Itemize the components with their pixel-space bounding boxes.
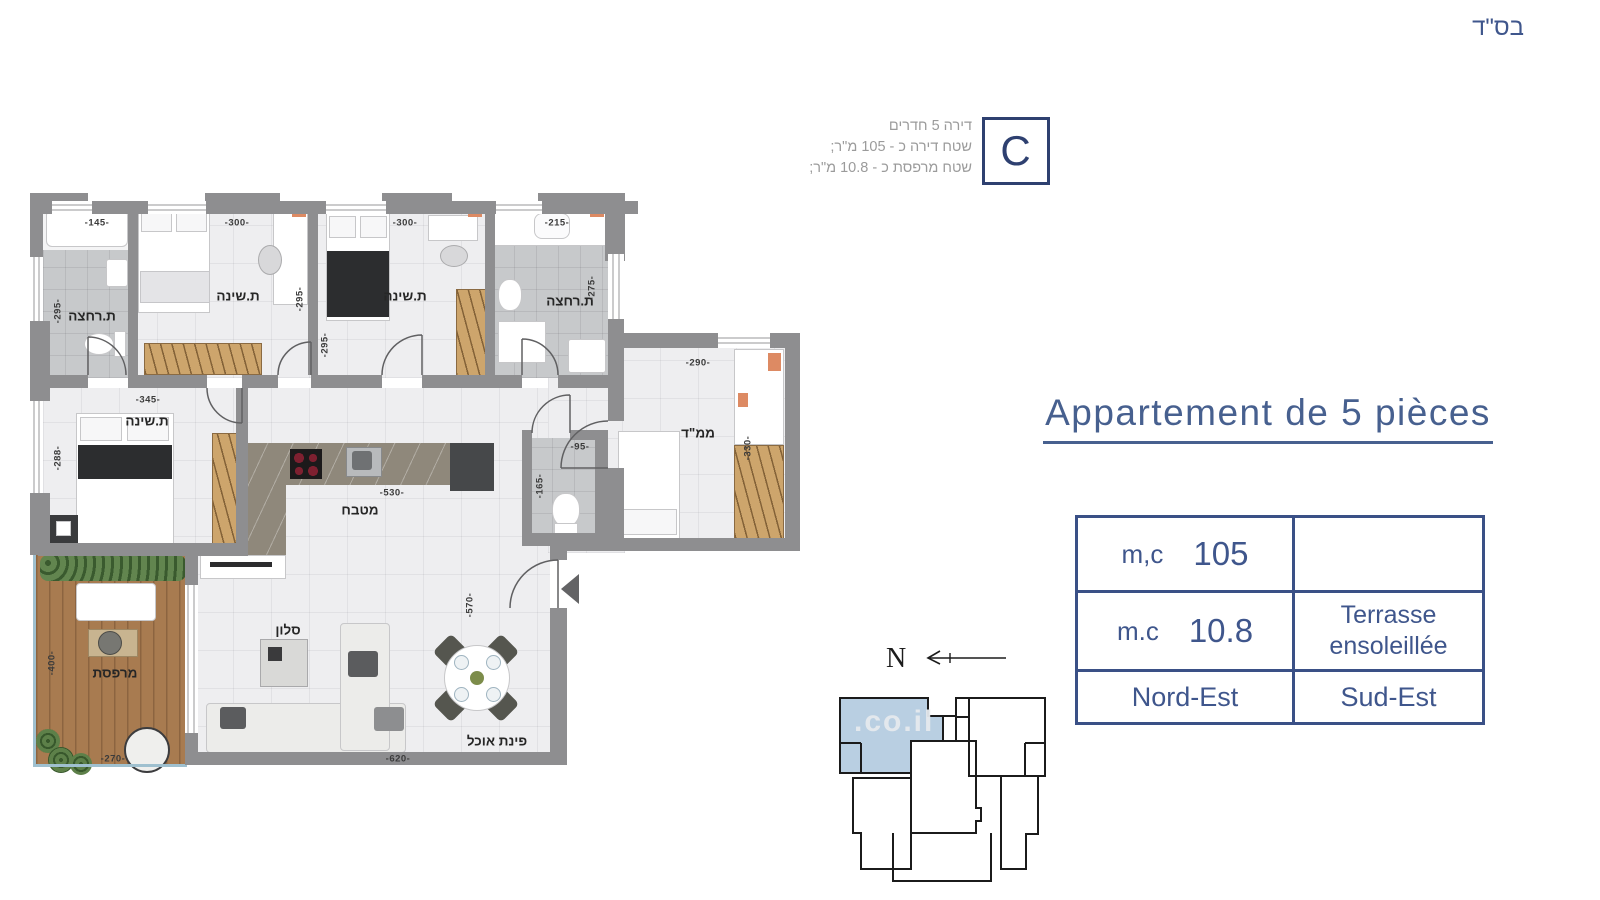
north-label: N bbox=[886, 643, 906, 674]
dim-wc-h: -165- bbox=[535, 474, 546, 499]
page-title-text: Appartement de 5 pièces bbox=[1043, 392, 1493, 444]
dim-bed1-w: -300- bbox=[225, 218, 250, 229]
spec-cell-orientation-left: Nord-Est bbox=[1078, 672, 1295, 722]
bath2-door bbox=[522, 339, 558, 375]
dim-kitchen-w: -530- bbox=[380, 488, 405, 499]
dim-master-w: -345- bbox=[136, 395, 161, 406]
info-line-area: שטח דירה כ - 105 מ"ר; bbox=[809, 137, 972, 158]
dim-wc-w: -95- bbox=[571, 442, 590, 453]
plan-overlay bbox=[30, 193, 810, 787]
unit-letter: C bbox=[1000, 127, 1031, 175]
north-compass: N bbox=[878, 638, 1013, 678]
page-title: Appartement de 5 pièces bbox=[1012, 392, 1524, 434]
spec-cell-terrace-label: Terrasse ensoleillée bbox=[1295, 593, 1482, 672]
bsd-blessing: בס"ד bbox=[1472, 14, 1524, 42]
room-label-mamad: ממ"ד bbox=[681, 426, 715, 441]
dim-bed2-w: -300- bbox=[393, 218, 418, 229]
keyplan-unit-left bbox=[853, 778, 911, 869]
orientation-right: Sud-Est bbox=[1340, 682, 1436, 713]
spec-cell-area: m,c 105 bbox=[1078, 518, 1295, 593]
spec-cell-terrace-area: m.c 10.8 bbox=[1078, 593, 1295, 672]
spec-row-area: m,c 105 bbox=[1078, 518, 1482, 593]
dim-living-h: -570- bbox=[465, 593, 476, 618]
building-keyplan: .co.il bbox=[826, 684, 1056, 889]
entry-door bbox=[510, 560, 558, 608]
room-label-dining: פינת אוכל bbox=[467, 734, 527, 749]
room-label-bed2: ת.שינה bbox=[383, 289, 426, 304]
spec-row-terrace: m.c 10.8 Terrasse ensoleillée bbox=[1078, 593, 1482, 672]
info-line-balcony: שטח מרפסת כ - 10.8 מ"ר; bbox=[809, 158, 972, 179]
dim-bath2-w: -215- bbox=[545, 218, 570, 229]
orientation-left: Nord-Est bbox=[1132, 682, 1239, 713]
entry-arrow-icon bbox=[561, 574, 579, 604]
dim-bath1-h: -295- bbox=[53, 299, 64, 324]
info-line-rooms: דירה 5 חדרים bbox=[809, 116, 972, 137]
room-label-master: ת.שינה bbox=[125, 414, 168, 429]
doors bbox=[88, 335, 608, 608]
keyplan-unit-middle bbox=[911, 741, 981, 833]
area-unit-label: m,c bbox=[1122, 539, 1164, 570]
spec-row-orientation: Nord-Est Sud-Est bbox=[1078, 672, 1482, 722]
floor-plan: ת.רחצה ת.שינה ת.שינה ת.רחצה ממ"ד ת.שינה … bbox=[30, 193, 810, 787]
keyplan-small-square bbox=[956, 698, 969, 717]
unit-letter-box: C bbox=[982, 117, 1050, 185]
master-door bbox=[207, 388, 242, 423]
keyplan-unit-right bbox=[969, 698, 1045, 776]
terrace-unit-label: m.c bbox=[1117, 616, 1159, 647]
dim-bed1-h: -295- bbox=[295, 287, 306, 312]
bed2-door bbox=[382, 335, 422, 375]
room-label-bed1: ת.שינה bbox=[216, 289, 259, 304]
bath1-door bbox=[88, 337, 126, 375]
room-label-balcony: מרפסת bbox=[93, 666, 138, 681]
keyplan-unit-right-notch bbox=[1025, 743, 1045, 776]
bed1-door bbox=[278, 342, 311, 375]
dim-balcony-h: -400- bbox=[47, 651, 58, 676]
room-label-bath1: ת.רחצה bbox=[68, 309, 116, 324]
terrace-label: Terrasse ensoleillée bbox=[1314, 600, 1464, 663]
room-label-kitchen: מטבח bbox=[341, 503, 378, 518]
apartment-info: דירה 5 חדרים שטח דירה כ - 105 מ"ר; שטח מ… bbox=[809, 116, 972, 179]
spec-cell-orientation-right: Sud-Est bbox=[1295, 672, 1482, 722]
dim-mamad-h: -330- bbox=[743, 436, 754, 461]
keyplan-unit-bottomcenter bbox=[893, 833, 991, 881]
windows bbox=[30, 201, 770, 733]
stairwell-core bbox=[943, 716, 956, 741]
spec-cell-empty bbox=[1295, 518, 1482, 593]
wc-door bbox=[532, 395, 570, 433]
watermark: .co.il bbox=[854, 705, 934, 738]
terrace-value: 10.8 bbox=[1189, 612, 1253, 650]
dim-balcony-w: -270- bbox=[101, 754, 126, 765]
dim-mamad-w: -290- bbox=[686, 358, 711, 369]
area-value: 105 bbox=[1193, 535, 1248, 573]
room-label-salon: סלון bbox=[275, 623, 300, 638]
keyplan-unit-bottomright bbox=[1001, 776, 1038, 869]
dim-bath1-w: -145- bbox=[85, 218, 110, 229]
dim-bed2-h: -295- bbox=[320, 333, 331, 358]
dim-bath2-h: -275- bbox=[587, 276, 598, 301]
dim-master-h: -288- bbox=[53, 446, 64, 471]
spec-table: m,c 105 m.c 10.8 Terrasse ensoleillée No… bbox=[1075, 515, 1485, 725]
dim-living-w: -620- bbox=[386, 754, 411, 765]
